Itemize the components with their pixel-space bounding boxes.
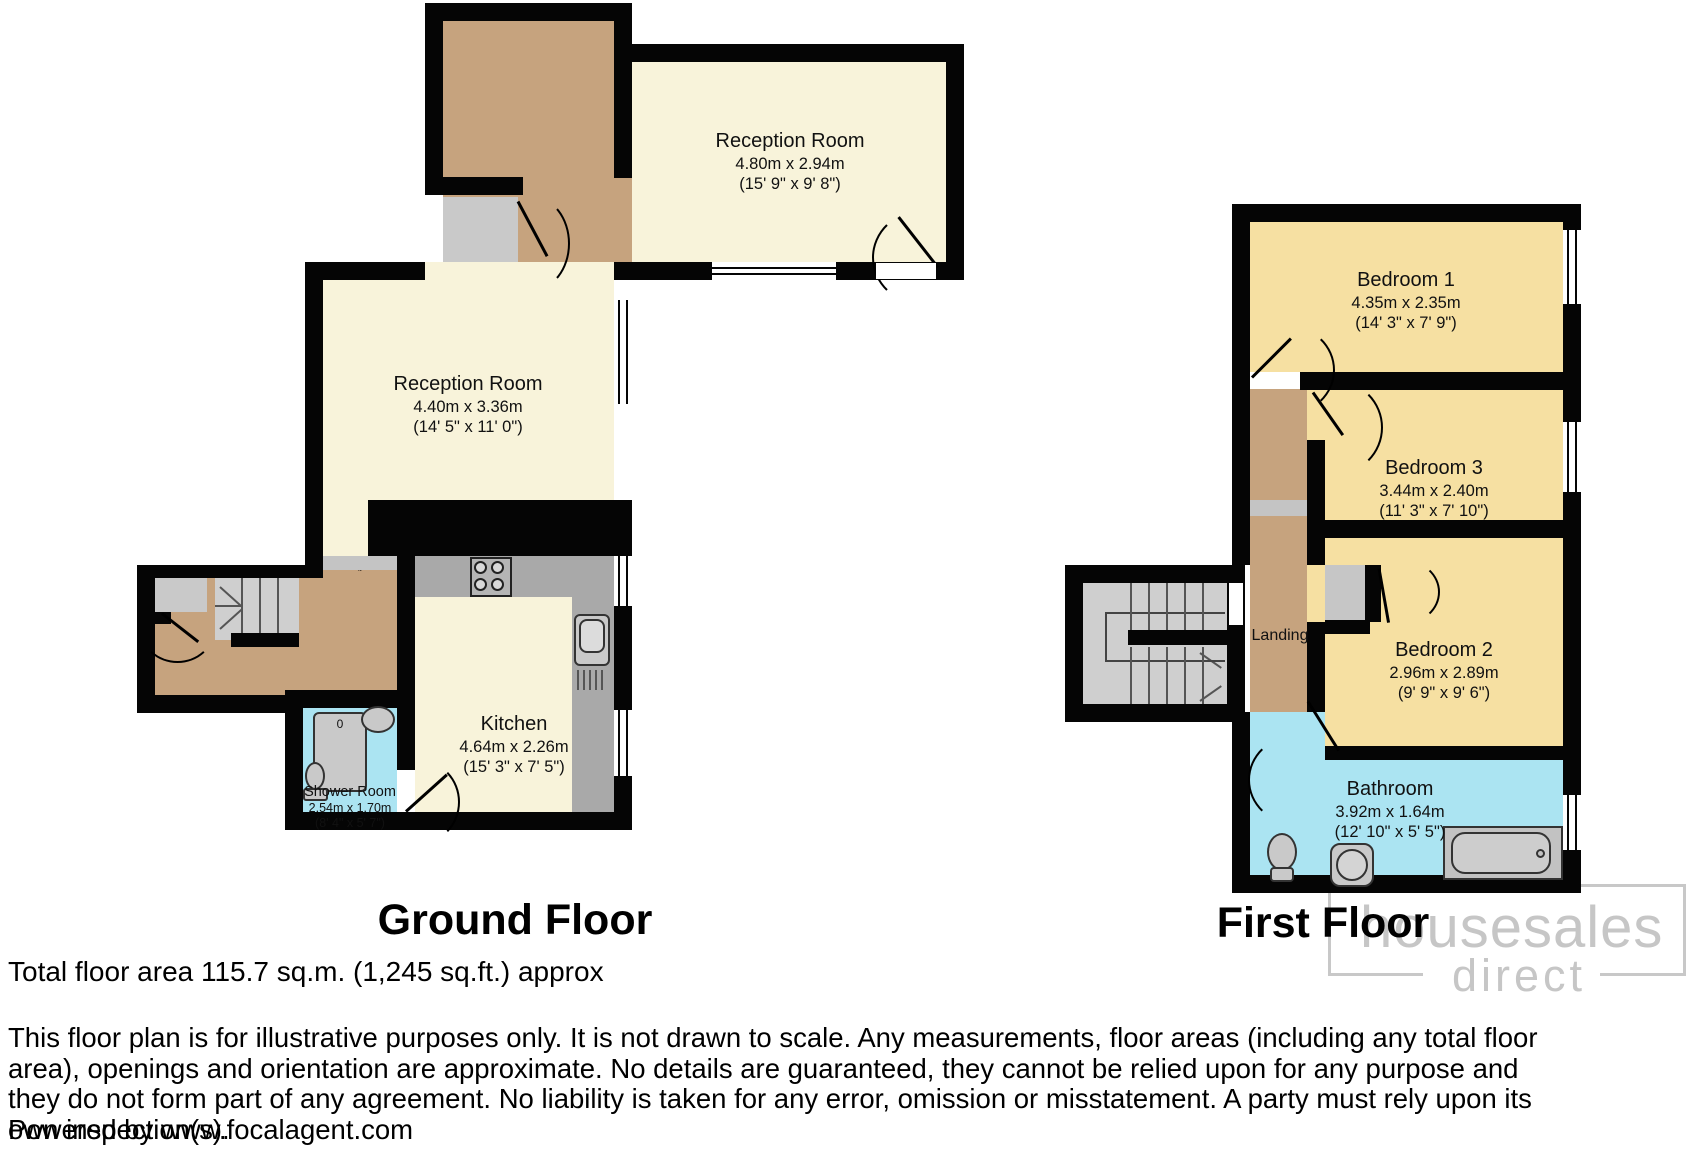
room-name: Bathroom bbox=[1240, 777, 1540, 802]
room-name: Reception Room bbox=[318, 372, 618, 397]
room-name: Bedroom 3 bbox=[1284, 456, 1584, 481]
room-name: Bedroom 2 bbox=[1294, 638, 1594, 663]
room-dim-imperial: (14' 5" x 11' 0") bbox=[318, 417, 618, 437]
burner bbox=[491, 561, 504, 574]
room-name: Bedroom 1 bbox=[1256, 268, 1556, 293]
room-label-landing: Landing bbox=[1248, 627, 1312, 645]
room-name: Shower Room bbox=[295, 784, 405, 801]
burner bbox=[474, 578, 487, 591]
wall bbox=[1325, 620, 1370, 634]
door-arc bbox=[1370, 560, 1440, 624]
drainer-line bbox=[595, 670, 597, 690]
watermark-box-line bbox=[1328, 973, 1423, 976]
drainer-line bbox=[601, 670, 603, 690]
door-arc bbox=[495, 196, 570, 291]
room-dim-metric: 2.96m x 2.89m bbox=[1294, 663, 1594, 683]
room-dim-imperial: (11' 3" x 7' 10") bbox=[1284, 501, 1584, 521]
frame-line bbox=[618, 300, 620, 404]
frame-line bbox=[712, 267, 836, 269]
drainer-line bbox=[583, 670, 585, 690]
wall bbox=[614, 500, 632, 830]
wall bbox=[368, 500, 614, 556]
stair-tread bbox=[1148, 583, 1150, 630]
watermark-box-line bbox=[1683, 884, 1686, 976]
room-dim-metric: 3.92m x 1.64m bbox=[1240, 802, 1540, 822]
frame-line bbox=[626, 300, 628, 404]
room-label-shower-room: Shower Room 2.54m x 1.70m (8' 4" x 5' 7"… bbox=[295, 784, 405, 831]
stair-tread bbox=[1130, 647, 1132, 704]
ground-floor-title: Ground Floor bbox=[100, 896, 930, 945]
room-label-bedroom-2: Bedroom 2 2.96m x 2.89m (9' 9" x 9' 6") bbox=[1294, 638, 1594, 703]
shower-tray-mark: 0 bbox=[330, 717, 350, 731]
hall-opening bbox=[614, 178, 632, 262]
powered-by-text: Powered by www.focalagent.com bbox=[8, 1114, 413, 1146]
door-gap bbox=[876, 263, 936, 279]
wall bbox=[1065, 565, 1245, 583]
sink-bowl bbox=[1336, 849, 1368, 881]
room-dim-imperial: (12' 10" x 5' 5") bbox=[1240, 822, 1540, 842]
frame-line bbox=[618, 556, 620, 606]
room-dim-metric: 4.64m x 2.26m bbox=[404, 737, 624, 757]
room-name: Kitchen bbox=[404, 712, 624, 737]
wall bbox=[614, 44, 964, 62]
room-label-bedroom-1: Bedroom 1 4.35m x 2.35m (14' 3" x 7' 9") bbox=[1256, 268, 1556, 333]
wall bbox=[425, 3, 632, 21]
staircase-ground bbox=[215, 578, 299, 640]
first-floor-title: First Floor bbox=[1068, 899, 1578, 948]
toilet-base bbox=[1270, 867, 1294, 882]
wall bbox=[425, 3, 443, 195]
frame-line bbox=[712, 273, 836, 275]
drainer-line bbox=[577, 670, 579, 690]
frame-line bbox=[1575, 795, 1577, 850]
stair-tread bbox=[277, 578, 279, 633]
wall bbox=[1232, 204, 1581, 222]
wall bbox=[1065, 704, 1245, 722]
room-label-bedroom-3: Bedroom 3 3.44m x 2.40m (11' 3" x 7' 10"… bbox=[1284, 456, 1584, 521]
door-arc bbox=[872, 210, 972, 305]
wall bbox=[1563, 204, 1581, 893]
room-dim-metric: 4.35m x 2.35m bbox=[1256, 293, 1556, 313]
bathtub-drain bbox=[1536, 849, 1545, 858]
stair-tread bbox=[1202, 647, 1204, 704]
room-label-reception-room-top: Reception Room 4.80m x 2.94m (15' 9" x 9… bbox=[640, 129, 940, 194]
kitchen-sink-bowl bbox=[579, 619, 605, 653]
wall bbox=[1325, 746, 1563, 760]
room-label-reception-room-left: Reception Room 4.40m x 3.36m (14' 5" x 1… bbox=[318, 372, 618, 437]
wall bbox=[397, 556, 415, 690]
room-dim-metric: 4.40m x 3.36m bbox=[318, 397, 618, 417]
stair-tread bbox=[1166, 583, 1168, 630]
window bbox=[1563, 230, 1581, 304]
frame-line bbox=[626, 556, 628, 606]
window bbox=[614, 556, 632, 606]
frame-line bbox=[1567, 230, 1569, 304]
watermark-box-line bbox=[1600, 973, 1686, 976]
wall bbox=[137, 565, 305, 578]
stair-tread bbox=[259, 578, 261, 633]
wall bbox=[425, 177, 523, 195]
room-name: Reception Room bbox=[640, 129, 940, 154]
wall bbox=[614, 3, 632, 178]
frame-line bbox=[1575, 230, 1577, 304]
room-dim-imperial: (14' 3" x 7' 9") bbox=[1256, 313, 1556, 333]
room-dim-metric: 3.44m x 2.40m bbox=[1284, 481, 1584, 501]
wall bbox=[305, 262, 425, 280]
room-dim-imperial: (9' 9" x 9' 6") bbox=[1294, 683, 1594, 703]
room-dim-metric: 4.80m x 2.94m bbox=[640, 154, 940, 174]
floorplan-canvas: Reception Room 4.80m x 2.94m (15' 9" x 9… bbox=[0, 0, 1696, 1152]
frame-line bbox=[1567, 795, 1569, 850]
door-arc bbox=[140, 595, 215, 663]
room-dim-metric: 2.54m x 1.70m bbox=[295, 801, 405, 816]
room-label-kitchen: Kitchen 4.64m x 2.26m (15' 3" x 7' 5") bbox=[404, 712, 624, 777]
stair-tread bbox=[1166, 647, 1168, 704]
wall bbox=[285, 690, 415, 708]
wall bbox=[231, 633, 299, 647]
drainer-line bbox=[589, 670, 591, 690]
wall bbox=[137, 695, 303, 713]
total-floor-area: Total floor area 115.7 sq.m. (1,245 sq.f… bbox=[8, 956, 604, 988]
stair-tread bbox=[215, 605, 243, 607]
stair-opening bbox=[1229, 583, 1243, 625]
room-dim-imperial: (15' 3" x 7' 5") bbox=[404, 757, 624, 777]
window bbox=[712, 262, 836, 280]
burner bbox=[491, 578, 504, 591]
wall bbox=[1307, 520, 1563, 538]
stair-mid-wall bbox=[1128, 630, 1227, 645]
stair-tread bbox=[1202, 583, 1204, 630]
sink-icon bbox=[361, 706, 395, 733]
stair-tread bbox=[1130, 583, 1132, 630]
wall bbox=[1065, 565, 1083, 722]
threshold bbox=[323, 556, 397, 570]
room-name: Landing bbox=[1248, 627, 1312, 645]
room-dim-imperial: (8' 4" x 5' 7") bbox=[295, 816, 405, 831]
window bbox=[1563, 795, 1581, 850]
room-label-bathroom: Bathroom 3.92m x 1.64m (12' 10" x 5' 5") bbox=[1240, 777, 1540, 842]
watermark-direct: direct bbox=[1452, 950, 1586, 1002]
stair-tread bbox=[1184, 647, 1186, 704]
stair-tread bbox=[1184, 583, 1186, 630]
stair-tread bbox=[1148, 647, 1150, 704]
room-dim-imperial: (15' 9" x 9' 8") bbox=[640, 174, 940, 194]
burner bbox=[474, 561, 487, 574]
frame-line bbox=[626, 710, 628, 776]
stair-bulkhead bbox=[1325, 565, 1365, 620]
